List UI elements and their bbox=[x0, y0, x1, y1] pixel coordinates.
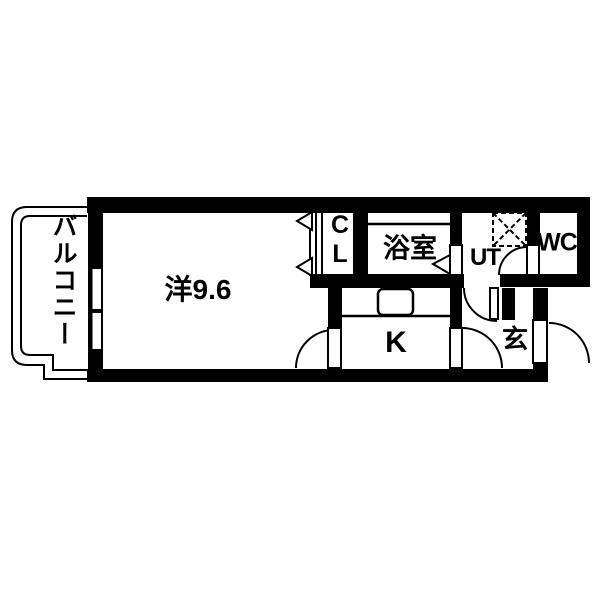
closet-bifold-door bbox=[297, 212, 322, 276]
door-hall-to-ut bbox=[464, 288, 498, 321]
main-room-label: 洋9.6 bbox=[165, 276, 232, 304]
window-sash-lower bbox=[92, 312, 103, 350]
door-leaf bbox=[450, 328, 462, 368]
washer-square bbox=[493, 213, 526, 246]
door-leaf bbox=[490, 288, 498, 319]
closet-door-triangle-upper bbox=[297, 212, 312, 230]
wall-mid-horizontal bbox=[310, 274, 464, 288]
door-leaf bbox=[328, 328, 341, 368]
window-sash-upper bbox=[92, 268, 103, 310]
wall-kitchen-right bbox=[450, 288, 462, 328]
wall-right-wc bbox=[577, 197, 590, 287]
kitchen-fixtures bbox=[342, 289, 450, 316]
entrance-label: 玄 bbox=[502, 326, 528, 352]
door-ut-to-wc bbox=[499, 245, 539, 275]
floor-plan: バルコニー 洋9.6 C L 浴室 UT WC K 玄 bbox=[0, 0, 600, 600]
closet-label-bottom: L bbox=[332, 240, 347, 268]
toilet-label: WC bbox=[537, 231, 577, 256]
front-door bbox=[533, 320, 589, 363]
wall-under-wc bbox=[500, 274, 590, 287]
bath-door-leaf bbox=[450, 245, 462, 275]
door-mainroom-to-kitchen bbox=[296, 328, 341, 368]
wall-kitchen-left bbox=[328, 288, 342, 328]
washing-machine-pan bbox=[493, 213, 526, 246]
closet-label-top: C bbox=[331, 211, 349, 239]
wall-cl-right bbox=[353, 213, 368, 274]
window-double-sash bbox=[92, 268, 103, 350]
wall-bath-right bbox=[450, 213, 462, 245]
floor-plan-drawing bbox=[0, 0, 600, 600]
door-arc bbox=[499, 247, 527, 275]
closet-label: C L bbox=[331, 211, 349, 269]
closet-door-triangle-lower bbox=[297, 258, 312, 276]
door-kitchen-to-hall bbox=[450, 328, 502, 368]
wall-entrance-right-bottom bbox=[533, 363, 548, 382]
door-leaf bbox=[533, 320, 547, 363]
door-arc bbox=[462, 328, 502, 368]
wall-entrance-stub bbox=[502, 288, 515, 320]
utility-label: UT bbox=[470, 246, 500, 270]
door-arc bbox=[549, 323, 589, 363]
wall-bottom bbox=[87, 369, 548, 382]
wall-entrance-right bbox=[533, 288, 548, 320]
kitchen-label: K bbox=[385, 328, 407, 358]
bathroom-label: 浴室 bbox=[383, 236, 437, 263]
balcony-label: バルコニー bbox=[50, 213, 75, 348]
kitchen-sink bbox=[378, 289, 413, 315]
